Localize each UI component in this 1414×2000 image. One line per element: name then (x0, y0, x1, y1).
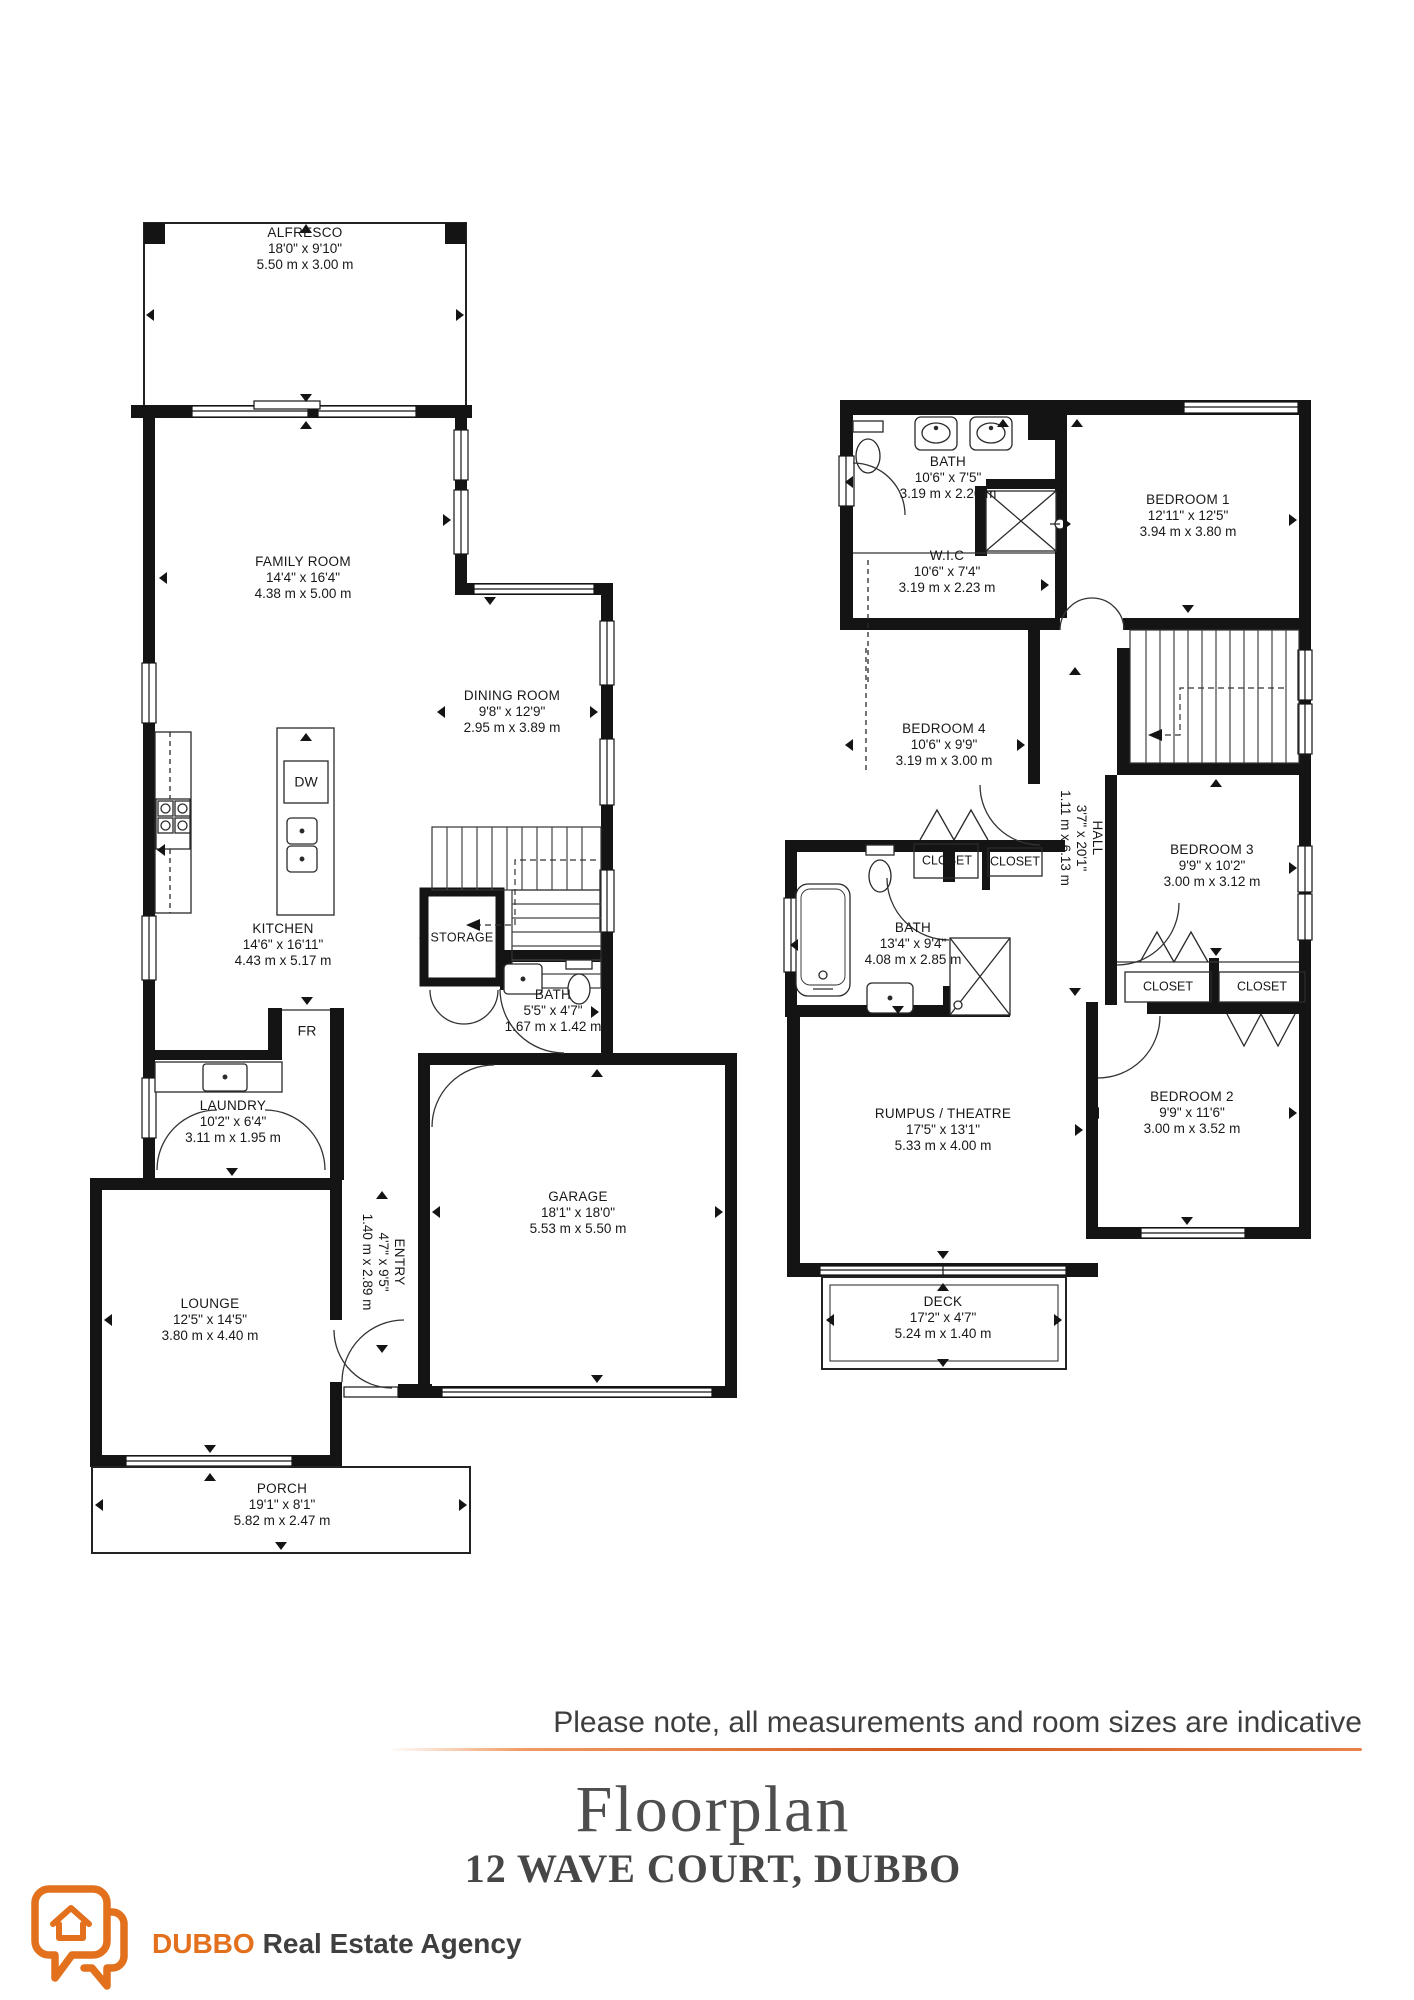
accent-divider (388, 1748, 1362, 1751)
room-label-hall: HALL 3'7" x 20'1" 1.11 m x 6.13 m (1057, 790, 1105, 886)
room-label-bedroom3: BEDROOM 3 9'9" x 10'2" 3.00 m x 3.12 m (1164, 842, 1261, 890)
toilet-tank (566, 960, 592, 969)
room-label-entry: ENTRY 4'7" x 9'5" 1.40 m x 2.89 m (359, 1214, 407, 1311)
staircase-first (1130, 630, 1299, 763)
floorplan-drawing (0, 0, 1414, 2000)
closet-label: CLOSET (922, 854, 972, 869)
agency-logo-text: DUBBOReal Estate Agency (152, 1928, 522, 1960)
agency-suffix: Real Estate Agency (263, 1928, 522, 1959)
room-label-dining-room: DINING ROOM 9'8" x 12'9" 2.95 m x 3.89 m (464, 688, 561, 736)
room-label-laundry: LAUNDRY 10'2" x 6'4" 3.11 m x 1.95 m (185, 1098, 281, 1146)
room-label-wic: W.I.C 10'6" x 7'4" 3.19 m x 2.23 m (899, 548, 996, 596)
kitchen-island (277, 728, 334, 915)
page-title: Floorplan (576, 1772, 851, 1848)
closet-label: CLOSET (990, 855, 1040, 870)
property-address: 12 WAVE COURT, DUBBO (465, 1845, 961, 1892)
toilet-tank (866, 845, 894, 855)
stove-cooktop (156, 799, 190, 849)
laundry-fixtures (155, 1062, 282, 1092)
ground-floor-plan (90, 223, 737, 1553)
room-label-bedroom2: BEDROOM 2 9'9" x 11'6" 3.00 m x 3.52 m (1144, 1089, 1241, 1137)
room-label-lounge: LOUNGE 12'5" x 14'5" 3.80 m x 4.40 m (162, 1296, 259, 1344)
room-label-bedroom1: BEDROOM 1 12'11" x 12'5" 3.94 m x 3.80 m (1140, 492, 1237, 540)
agency-logo-icon (28, 1882, 134, 1994)
floorplan-page: ALFRESCO 18'0" x 9'10" 5.50 m x 3.00 m F… (0, 0, 1414, 2000)
shower-upper (986, 491, 1065, 551)
room-label-garage: GARAGE 18'1" x 18'0" 5.53 m x 5.50 m (530, 1189, 627, 1237)
bathtub (796, 884, 850, 996)
room-label-alfresco: ALFRESCO 18'0" x 9'10" 5.50 m x 3.00 m (257, 225, 354, 273)
room-label-bedroom4: BEDROOM 4 10'6" x 9'9" 3.19 m x 3.00 m (896, 721, 993, 769)
room-label-kitchen: KITCHEN 14'6" x 16'11" 4.43 m x 5.17 m (235, 921, 332, 969)
room-label-porch: PORCH 19'1" x 8'1" 5.82 m x 2.47 m (234, 1481, 331, 1529)
room-label-bath-upper: BATH 10'6" x 7'5" 3.19 m x 2.26 m (900, 454, 997, 502)
room-label-bath-mid: BATH 13'4" x 9'4" 4.08 m x 2.85 m (865, 920, 962, 968)
room-label-rumpus: RUMPUS / THEATRE 17'5" x 13'1" 5.33 m x … (875, 1106, 1011, 1154)
kitchen-fixtures (155, 728, 334, 915)
measurement-arrows-first (790, 419, 1297, 1367)
room-label-deck: DECK 17'2" x 4'7" 5.24 m x 1.40 m (895, 1294, 992, 1342)
dishwasher-label: DW (294, 774, 317, 791)
room-label-bath-ground: BATH 5'5" x 4'7" 1.67 m x 1.42 m (505, 987, 602, 1035)
room-label-family-room: FAMILY ROOM 14'4" x 16'4" 4.38 m x 5.00 … (255, 554, 352, 602)
measurements-disclaimer: Please note, all measurements and room s… (553, 1706, 1362, 1740)
agency-brand: DUBBO (152, 1928, 255, 1959)
speech-bubble-front (35, 1889, 107, 1978)
fridge-label: FR (298, 1023, 317, 1040)
closet-label: CLOSET (1143, 980, 1193, 995)
closet-label: CLOSET (1237, 980, 1287, 995)
room-label-storage: STORAGE (431, 931, 494, 946)
toilet-tank (853, 421, 883, 432)
